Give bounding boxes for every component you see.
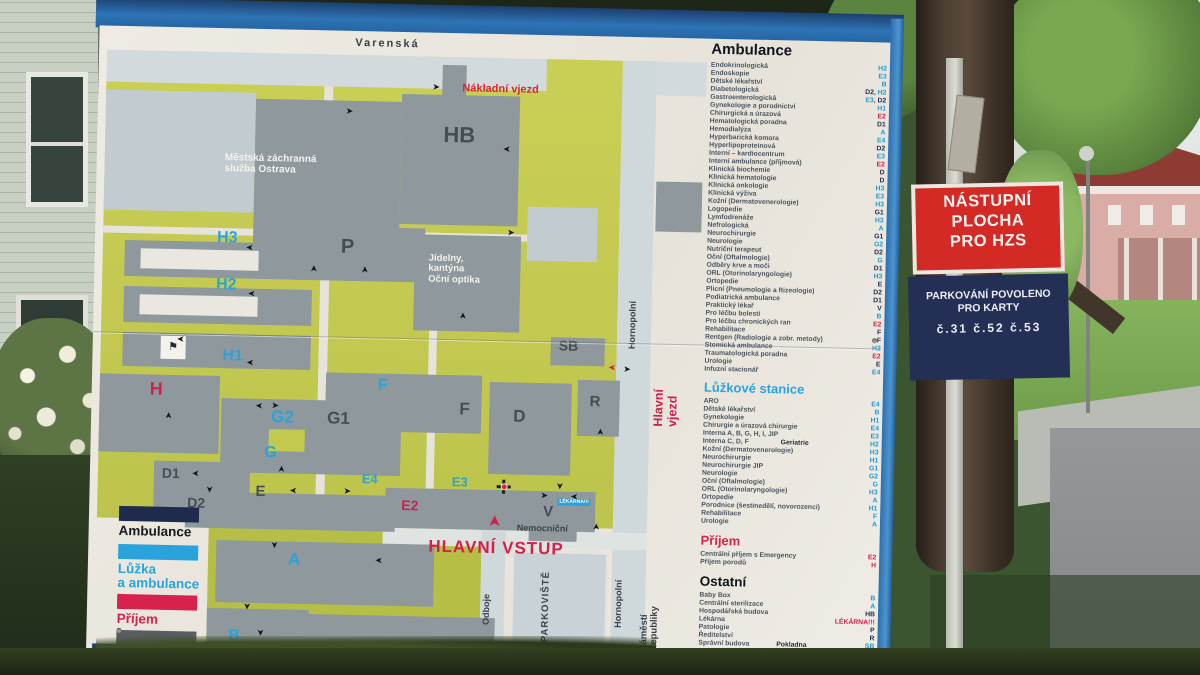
building-h3-court (140, 248, 258, 271)
arrow-icon: ➤ (459, 312, 468, 320)
arrow-icon: ➤ (623, 365, 631, 374)
building-label: A (288, 551, 301, 570)
arrow-icon: ➤ (507, 228, 515, 237)
legend-item: Příjem (117, 594, 238, 628)
beds-list-title: Lůžkové stanice (704, 380, 880, 399)
legend-item: Ambulance (118, 506, 239, 540)
admission-list: Centrální příjem s EmergencyE2Příjem por… (700, 551, 876, 571)
you-are-here-marker (497, 479, 511, 493)
other-list-title: Ostatní (700, 574, 876, 593)
parking-permit-sign: PARKOVÁNÍ POVOLENO PRO KARTY č.31 č.52 č… (908, 273, 1070, 380)
admission-list-title: Příjem (700, 533, 876, 552)
arrow-icon: ➤ (277, 465, 286, 473)
arrow-icon: ➤ (192, 468, 200, 477)
street-label: Hornopolní (614, 580, 625, 628)
building-label: H (150, 380, 163, 400)
pink-building-window (1140, 205, 1153, 225)
legend-swatch (119, 506, 199, 523)
building-label: E2 (401, 498, 418, 513)
legend-swatch (118, 544, 198, 561)
arrow-icon: ➤ (487, 514, 503, 528)
street-label: HLAVNÍ VSTUP (428, 538, 564, 559)
building-h1 (122, 332, 311, 370)
screw (116, 628, 121, 633)
arrow-icon: ➤ (375, 555, 383, 564)
building-label: E3 (452, 475, 468, 489)
arrow-icon: ➤ (177, 334, 185, 343)
lamp-head (1079, 146, 1094, 161)
hzs-assembly-area-sign: NÁSTUPNÍ PLOCHA PRO HZS (911, 181, 1065, 274)
building-label: H1 (222, 347, 243, 365)
arrow-icon: ➤ (289, 486, 297, 495)
pink-building-window (1108, 205, 1121, 225)
parking-card-numbers: č.31 č.52 č.53 (909, 319, 1069, 336)
legend-item: Lůžka a ambulance (117, 544, 238, 592)
arrow-icon: ➤ (242, 602, 251, 610)
building-label: E (255, 484, 265, 500)
campus-area-top (546, 59, 623, 101)
building-label: V (543, 504, 553, 520)
building-label: F (378, 377, 388, 394)
building-label: G1 (327, 409, 350, 428)
arrow-icon: ➤ (570, 492, 578, 501)
arrow-icon: ➤ (310, 265, 319, 273)
arrow-icon: ➤ (361, 266, 370, 274)
pink-building-window (1172, 205, 1185, 225)
lamp-post (1086, 158, 1090, 413)
other-list: Baby BoxBCentrální sterilizaceAHospodářs… (698, 592, 875, 652)
parking-line2: PRO KARTY (908, 300, 1068, 315)
beds-list: AROE4Dětské lékařstvíBGynekologieH1Chiru… (701, 398, 880, 530)
building-label: D1 (162, 466, 180, 481)
arrow-icon: ➤ (592, 523, 601, 531)
campus-map: ⚑ VarenskáNákladní vjezdHornopolníHlavní… (94, 30, 707, 659)
arrow-icon: ➤ (608, 363, 616, 372)
building-across-street (655, 182, 702, 233)
photo-of-hospital-map-sign: ⚑ VarenskáNákladní vjezdHornopolníHlavní… (0, 0, 1200, 675)
building-h2-court (139, 294, 257, 317)
arrow-icon: ➤ (343, 487, 351, 496)
street-label: Varenská (355, 38, 420, 51)
arrow-icon: ➤ (164, 412, 173, 420)
arrow-icon: ➤ (540, 491, 548, 500)
building-label: HB (443, 123, 475, 147)
legend-swatch (117, 594, 197, 611)
building-label: D (513, 407, 526, 426)
building-label: F (459, 400, 470, 419)
building-label: P (341, 237, 355, 259)
street-label: Nákladní vjezd (462, 83, 539, 97)
department-list: Ambulance EndokrinologickáH2EndoskopieE3… (698, 41, 887, 652)
building-label: H2 (216, 276, 237, 294)
street-label: PARKOVIŠTĚ (540, 571, 552, 642)
building-label: E4 (362, 472, 378, 486)
street-label: Hornopolní (628, 301, 639, 349)
ambulance-list: EndokrinologickáH2EndoskopieE3Dětské lék… (704, 62, 887, 378)
legend-label: Lůžka a ambulance (117, 562, 238, 592)
hospital-map-board: ⚑ VarenskáNákladní vjezdHornopolníHlavní… (86, 1, 900, 668)
arrow-icon: ➤ (346, 107, 354, 116)
tree-foliage (995, 0, 1200, 175)
ambulance-list-title: Ambulance (711, 41, 887, 62)
screw (872, 338, 877, 343)
street-label: Odboje (482, 594, 492, 625)
arrow-icon: ➤ (246, 243, 254, 252)
building-label: H3 (217, 229, 238, 247)
hzs-line3: PRO HZS (916, 230, 1060, 253)
legend-label: Ambulance (118, 524, 238, 540)
arrow-icon: ➤ (248, 289, 256, 298)
arrow-icon: ➤ (246, 358, 254, 367)
legend-label: Příjem (117, 612, 237, 628)
building-window-upper (26, 72, 88, 207)
building-label: G2 (271, 408, 294, 427)
foreground-undergrowth (0, 648, 1200, 675)
building-hb (399, 94, 520, 227)
building-label: G (264, 444, 277, 462)
arrow-icon: ➤ (596, 428, 605, 436)
building-label: Jídelny, kantýna Oční optika (428, 254, 480, 286)
arrow-icon: ➤ (432, 83, 440, 92)
arrow-icon: ➤ (503, 144, 511, 153)
arrow-icon: ➤ (255, 401, 263, 410)
building-label: Městská záchranná služba Ostrava (224, 153, 316, 177)
building-a (215, 540, 434, 607)
arrow-icon: ➤ (205, 485, 214, 493)
street-label: Hlavní vjezd (652, 380, 680, 428)
building-light-2 (527, 207, 598, 263)
building-light (104, 90, 257, 213)
building-d (488, 382, 572, 476)
street-label: Nemocniční (517, 524, 568, 535)
arrow-icon: ➤ (271, 401, 279, 410)
arrow-icon: ➤ (555, 482, 564, 490)
building-label: R (589, 394, 600, 410)
arrow-icon: ➤ (270, 541, 279, 549)
